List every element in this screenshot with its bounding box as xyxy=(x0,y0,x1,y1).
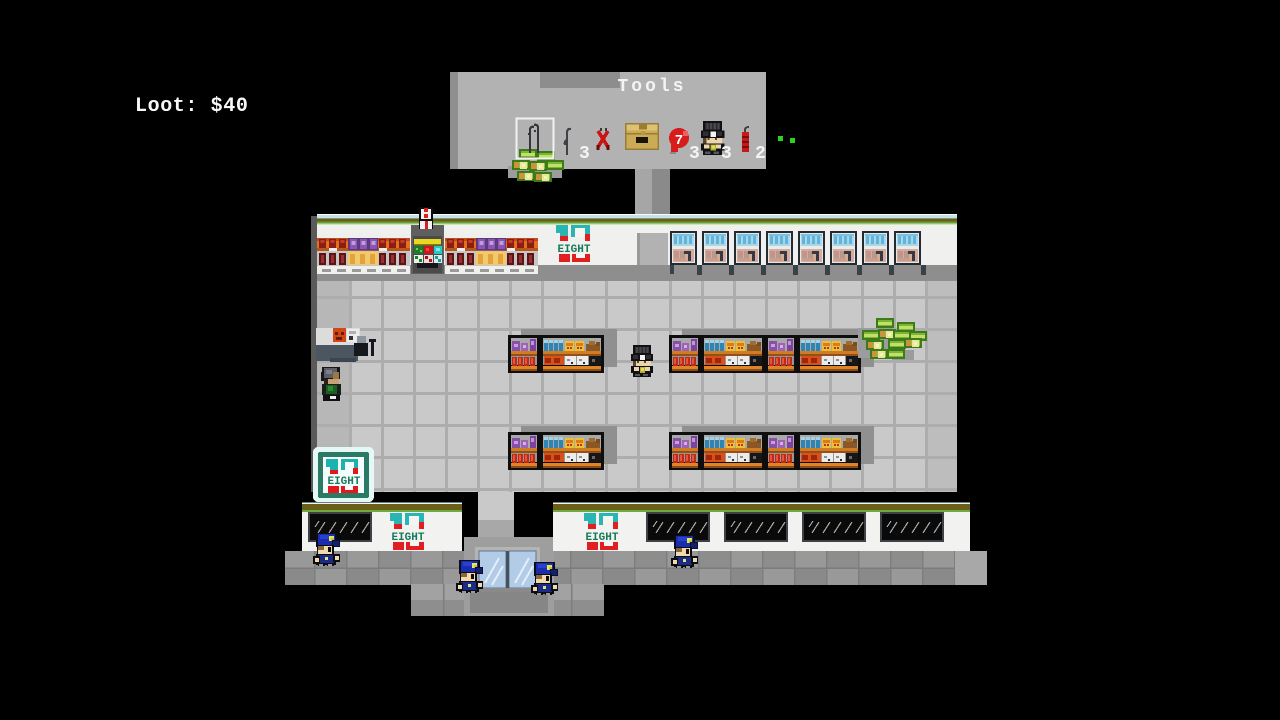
svg-text:3: 3 xyxy=(579,144,590,164)
svg-text:3: 3 xyxy=(721,144,732,164)
svg-text:2: 2 xyxy=(755,144,766,164)
svg-text:Tools: Tools xyxy=(617,77,686,97)
svg-text:3: 3 xyxy=(689,144,700,164)
svg-text:Loot: $40: Loot: $40 xyxy=(135,95,248,118)
svg-text:7: 7 xyxy=(675,133,683,149)
